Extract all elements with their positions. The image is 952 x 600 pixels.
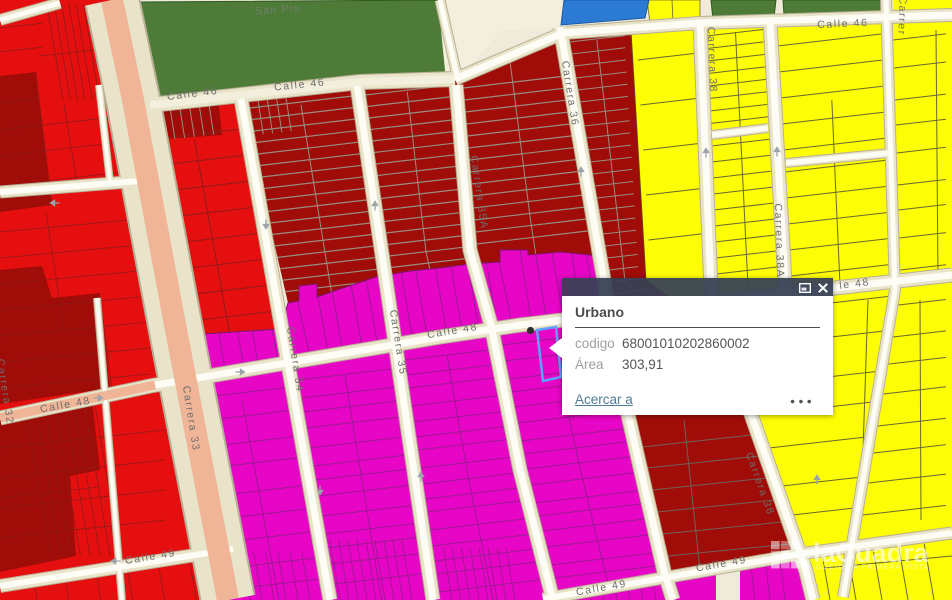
svg-text:Carrer: Carrer (895, 0, 908, 36)
svg-text:Calle 46: Calle 46 (817, 17, 869, 31)
svg-text:Carrera 38: Carrera 38 (705, 27, 719, 94)
svg-text:GOCIOS A PRIMERA VISTA: GOCIOS A PRIMERA VISTA (816, 564, 929, 571)
